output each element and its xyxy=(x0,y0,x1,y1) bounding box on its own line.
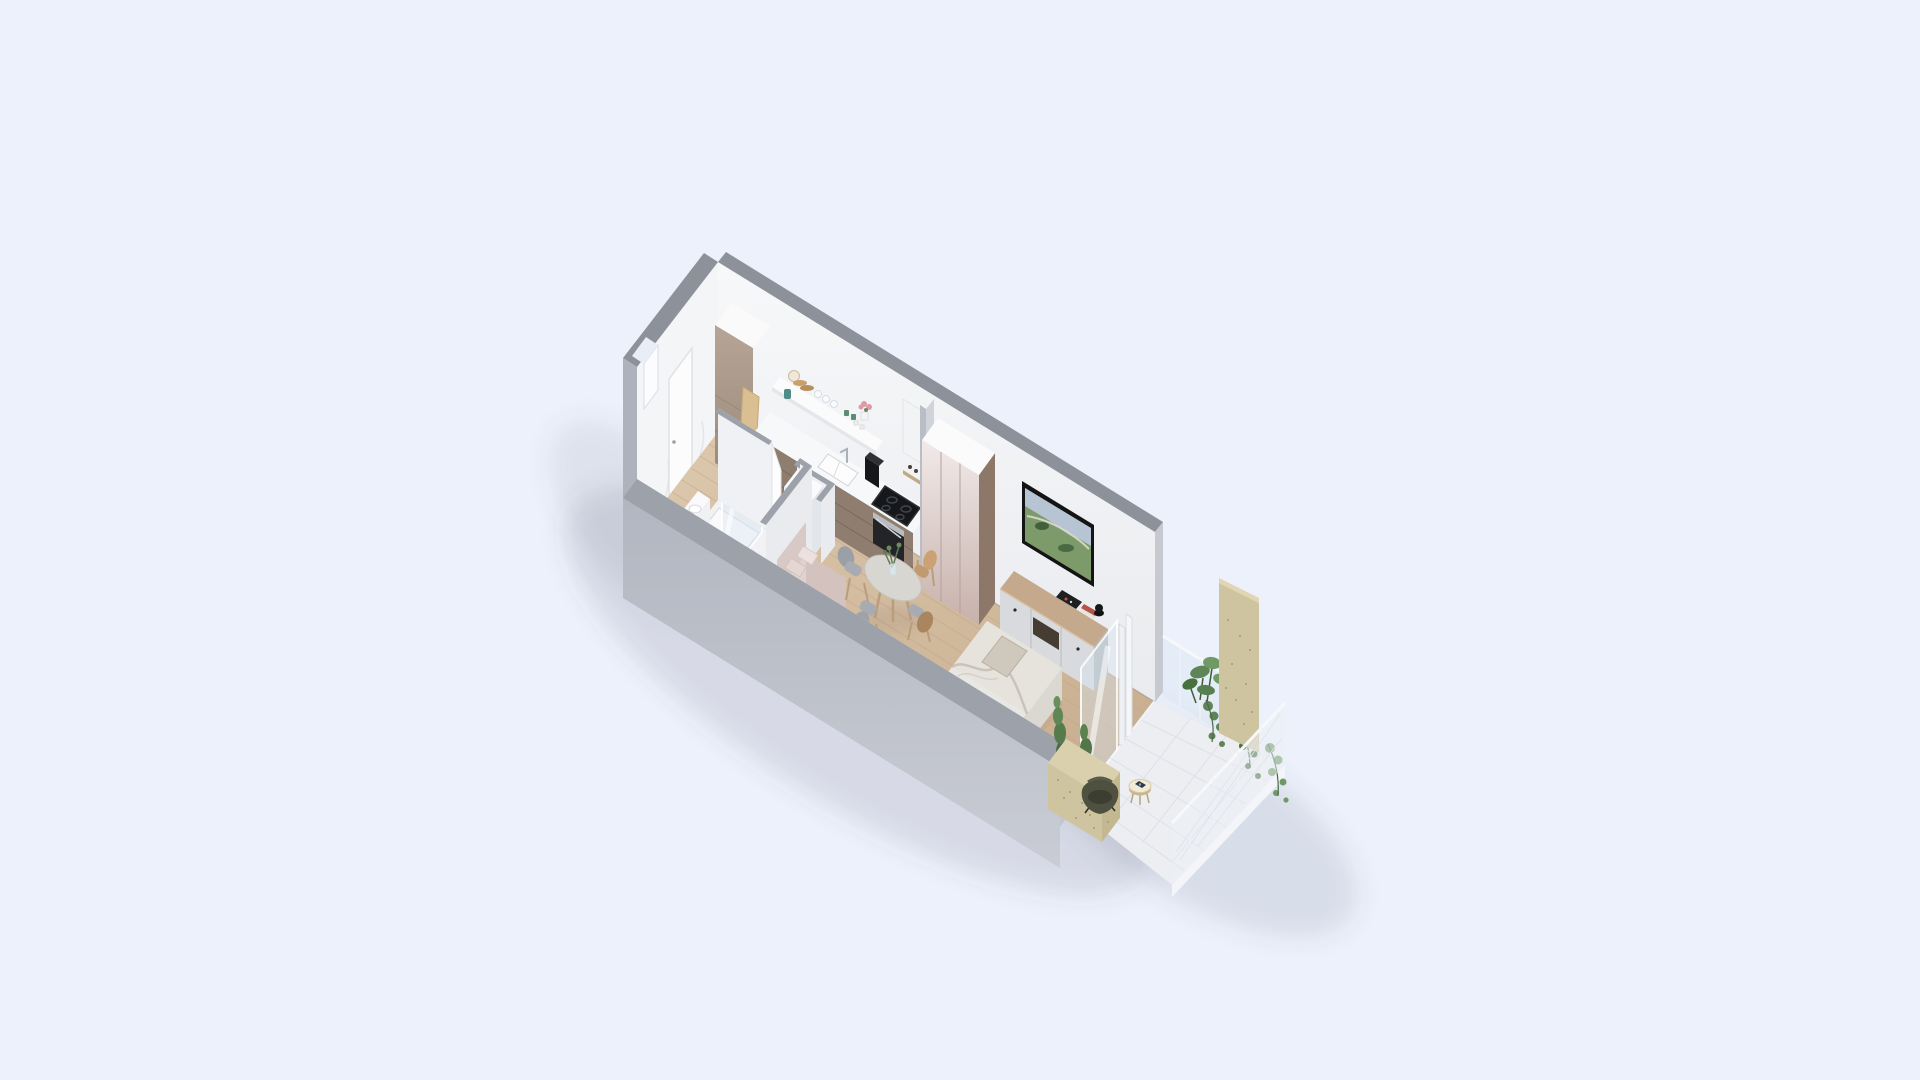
floorplan-svg xyxy=(0,0,1920,1080)
bowl xyxy=(800,385,814,391)
spice-jar xyxy=(914,469,918,473)
plywood-privacy-panel xyxy=(1219,578,1259,753)
screen-hills xyxy=(1035,522,1049,530)
wardrobe xyxy=(922,418,995,625)
door-post xyxy=(1119,624,1125,748)
spice-jar xyxy=(908,465,912,469)
door-handle xyxy=(672,440,676,444)
basin xyxy=(689,505,701,513)
ne-wall-end-cap xyxy=(1155,522,1163,702)
flower-leaf xyxy=(864,408,868,412)
door-post xyxy=(1126,614,1132,740)
bowl xyxy=(793,380,807,386)
flower-pot xyxy=(861,412,868,420)
console-handle xyxy=(1013,608,1016,611)
plate xyxy=(789,371,800,382)
green-cup xyxy=(844,410,849,416)
black-vase xyxy=(1095,604,1103,612)
teal-jug xyxy=(784,389,791,399)
tealight xyxy=(860,425,864,429)
isometric-apartment-render xyxy=(0,0,1920,1080)
tealight xyxy=(854,421,858,425)
wardrobe-side xyxy=(979,453,995,625)
green-cup xyxy=(851,414,856,420)
screen-hills xyxy=(1058,544,1074,552)
console-handle xyxy=(1076,647,1079,650)
